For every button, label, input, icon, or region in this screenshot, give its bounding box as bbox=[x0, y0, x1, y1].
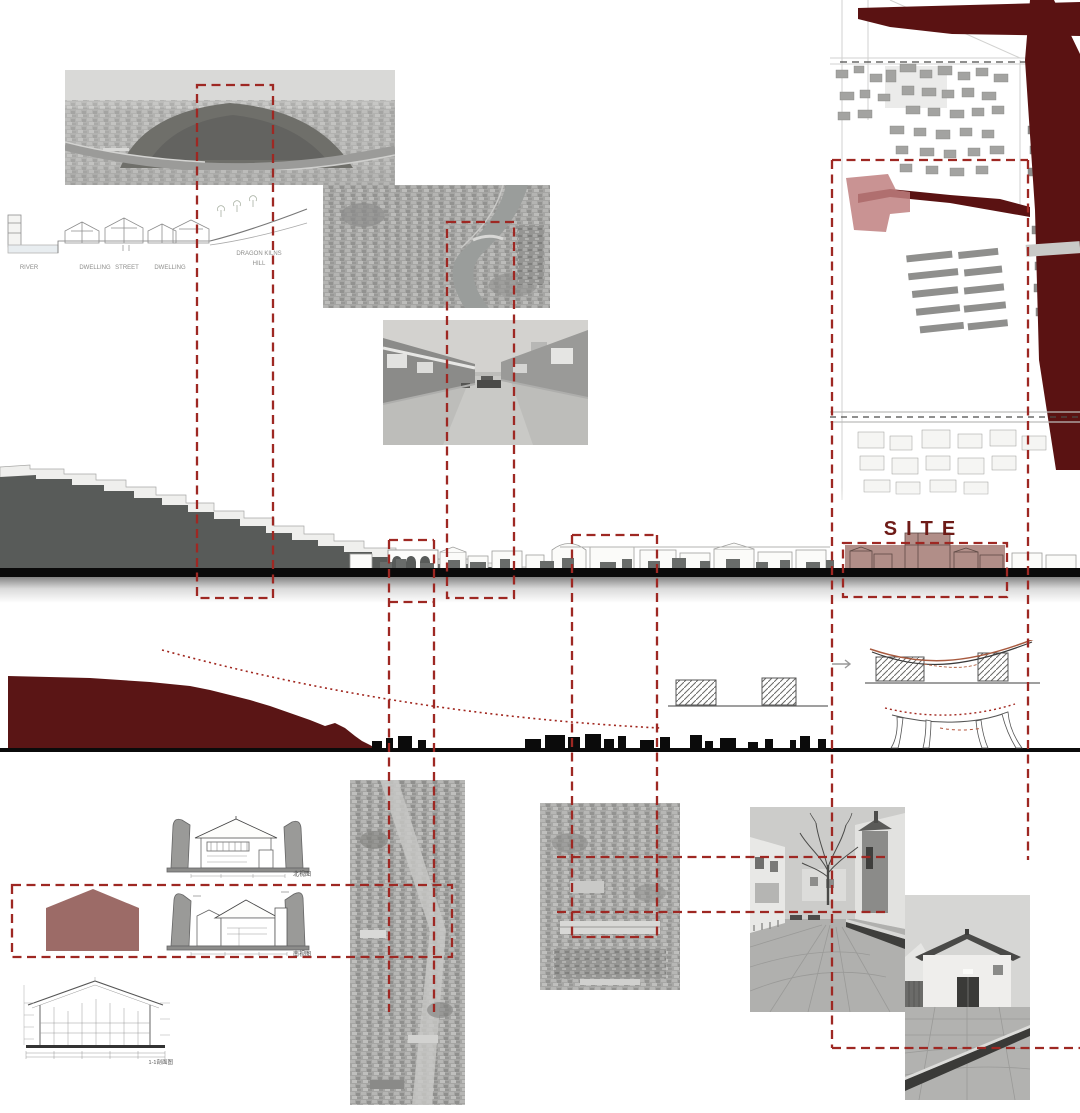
dashed-connector-overlay bbox=[0, 0, 1080, 1113]
dashed-box-red-house bbox=[12, 885, 452, 957]
dashed-box-kiln bbox=[389, 540, 434, 1012]
dashed-box-hill bbox=[197, 85, 273, 598]
dashed-box-midtown bbox=[572, 535, 657, 937]
dashed-box-site-section bbox=[843, 543, 1007, 597]
dashed-frame-site bbox=[832, 160, 1080, 1048]
dashed-horizontals-photos bbox=[557, 857, 887, 912]
dashed-box-river bbox=[447, 222, 514, 598]
site-analysis-board: RIVER DWELLING STREET DWELLING DRAGON KI… bbox=[0, 0, 1080, 1113]
